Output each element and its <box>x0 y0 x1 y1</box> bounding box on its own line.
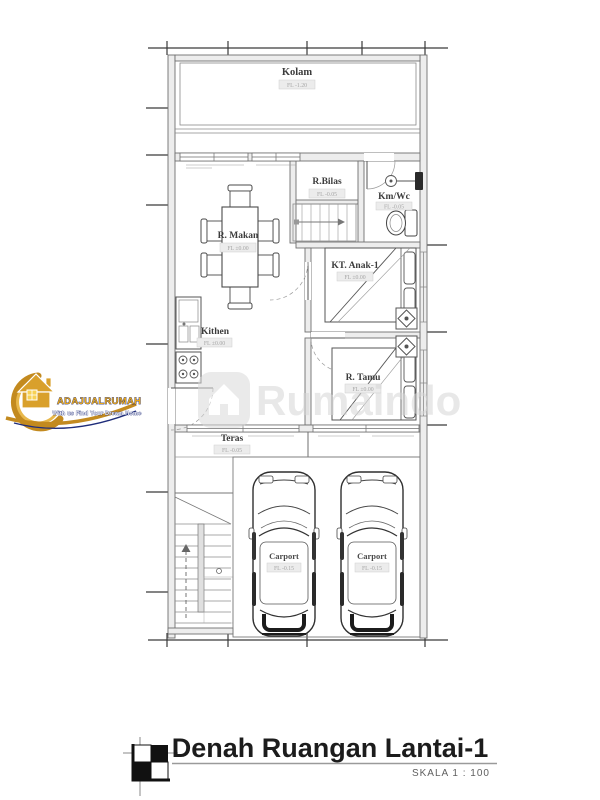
main-staircase <box>175 493 233 623</box>
logo-brand-text: ADAJUALRUMAH <box>57 396 141 407</box>
floor-plan-page: Kolam FL -1.20 R. Makan FL ±0.00 R.Bilas… <box>0 0 600 800</box>
elev-tag-r-makan: FL ±0.00 <box>227 246 248 252</box>
room-label-kithen: Kithen <box>201 327 230 337</box>
elev-tag-r-bilas: FL -0.05 <box>317 192 337 198</box>
chair-icon <box>257 219 279 243</box>
hall-steps <box>293 204 356 241</box>
title-block: Denah Ruangan Lantai-1 SKALA 1 : 100 <box>123 733 497 796</box>
watermark-rumaindo: Rumaindo <box>198 372 461 428</box>
chair-icon <box>228 287 252 309</box>
elev-tag-kithen: FL ±0.00 <box>204 341 225 347</box>
room-label-r-makan: R. Makan <box>218 231 259 241</box>
chair-icon <box>201 253 223 277</box>
title-block-icon <box>123 737 178 796</box>
stove-icon <box>176 352 201 383</box>
room-label-carport-2: Carport <box>357 551 387 561</box>
scale-label: SKALA 1 : 100 <box>412 768 490 779</box>
elev-tag-carport-2: FL -0.15 <box>362 566 382 572</box>
plan-title: Denah Ruangan Lantai-1 <box>172 733 489 763</box>
elev-tag-teras: FL -0.05 <box>222 448 242 454</box>
room-label-kolam: Kolam <box>282 67 313 78</box>
room-label-kt-anak-1: KT. Anak-1 <box>331 261 379 271</box>
watermark-text: Rumaindo <box>256 377 461 424</box>
watermark-house-icon <box>198 372 250 428</box>
chair-icon <box>228 185 252 207</box>
chair-icon <box>257 253 279 277</box>
exhaust-fan-icon <box>396 336 417 357</box>
room-label-km-wc: Km/Wc <box>378 192 410 202</box>
toilet-icon <box>387 210 418 236</box>
elev-tag-carport-1: FL -0.15 <box>274 566 294 572</box>
room-label-r-bilas: R.Bilas <box>312 177 342 187</box>
elev-tag-kolam: FL -1.20 <box>287 83 307 89</box>
logo-adajualrumah: ADAJUALRUMAH With us Find Your Dream Hom… <box>6 374 141 428</box>
room-label-teras: Teras <box>221 434 244 444</box>
elev-tag-km-wc: FL -0.05 <box>384 205 404 211</box>
exhaust-fan-icon <box>396 308 417 329</box>
logo-tagline-text: With us Find Your Dream Home <box>53 411 142 417</box>
room-label-carport-1: Carport <box>269 551 299 561</box>
elev-tag-kt-anak-1: FL ±0.00 <box>344 275 365 281</box>
